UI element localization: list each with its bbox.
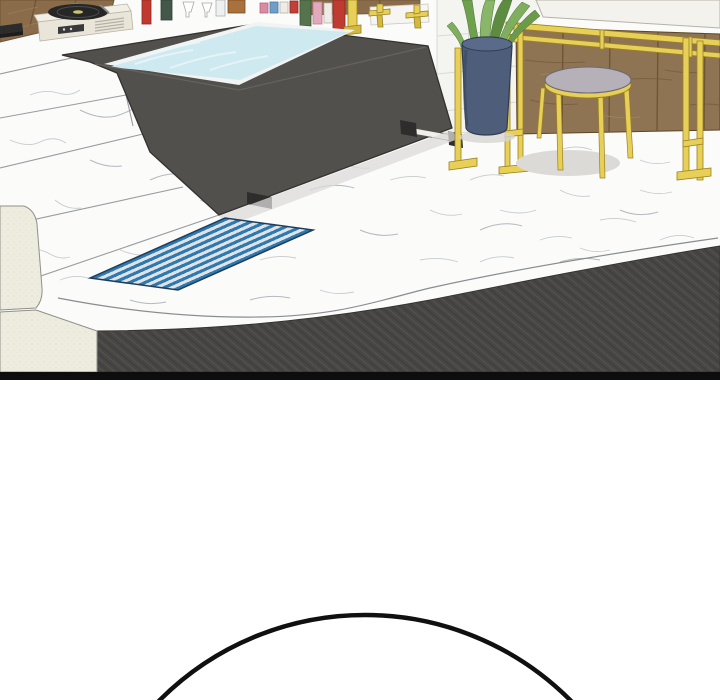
record-label	[73, 10, 83, 14]
pink-pump-bottle	[313, 2, 322, 24]
tall-green-bottle	[300, 0, 311, 26]
bar-leg	[683, 38, 689, 176]
red-bottle	[142, 0, 151, 24]
bar-end-leg	[455, 48, 461, 166]
stool-seat	[545, 67, 631, 93]
blue-jar	[270, 2, 278, 13]
panel-border	[0, 372, 720, 380]
lounger-back	[0, 206, 42, 310]
bar-leg	[697, 41, 703, 180]
comic-page	[0, 0, 720, 700]
gutter	[0, 380, 720, 700]
pink-jar	[260, 3, 268, 13]
amber-box	[228, 0, 245, 13]
red-can	[333, 0, 345, 29]
planter-rim	[462, 37, 512, 51]
clear-bottle	[216, 0, 225, 16]
green-bottle	[161, 0, 172, 20]
webtoon-panel-scene	[0, 0, 720, 700]
small-red-bottle	[290, 1, 298, 13]
planter-pot	[462, 37, 512, 135]
pool-room-panel	[0, 0, 720, 380]
white-jar	[280, 2, 288, 13]
white-tube	[324, 3, 332, 23]
bar-leg	[518, 27, 523, 170]
